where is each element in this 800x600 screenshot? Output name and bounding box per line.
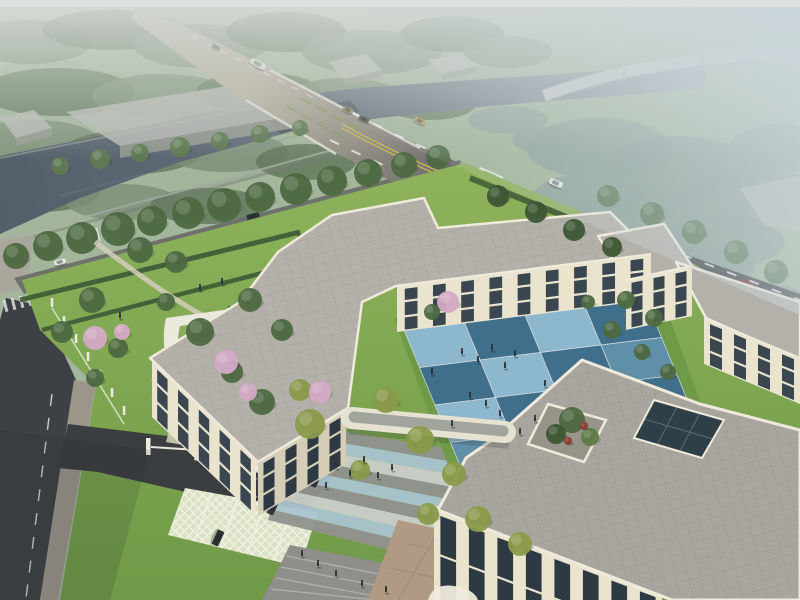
tree <box>280 173 312 205</box>
person <box>361 582 363 587</box>
person-head <box>385 586 387 588</box>
tree-highlight <box>426 306 433 313</box>
person <box>119 314 121 319</box>
person <box>534 417 536 422</box>
tree <box>207 188 241 222</box>
tree-highlight <box>565 438 569 442</box>
tree-highlight <box>562 410 574 422</box>
tree-highlight <box>468 509 480 521</box>
person-shadow <box>199 291 203 293</box>
person-head <box>301 550 303 552</box>
tree <box>172 197 204 229</box>
tree <box>108 338 128 358</box>
tree-highlight <box>549 426 558 435</box>
person <box>301 552 303 557</box>
person-shadow <box>451 427 455 429</box>
tree <box>424 304 440 320</box>
tree-highlight <box>420 505 430 515</box>
tree <box>186 318 214 346</box>
tree <box>289 379 311 401</box>
tree <box>157 293 175 311</box>
person-shadow <box>385 593 389 595</box>
tree-highlight <box>321 169 335 183</box>
person <box>469 394 471 399</box>
tree-highlight <box>168 253 178 263</box>
tree <box>86 369 104 387</box>
facade-window <box>330 418 341 473</box>
person-shadow <box>119 319 123 321</box>
facade-window <box>676 271 687 318</box>
person <box>499 412 501 417</box>
tree <box>660 364 676 380</box>
person-head <box>221 278 223 280</box>
tree-highlight <box>605 323 613 331</box>
person <box>431 370 433 375</box>
tree-highlight <box>116 326 123 333</box>
person-shadow <box>317 567 321 569</box>
person <box>544 382 546 387</box>
tree <box>239 383 257 401</box>
tree-highlight <box>528 203 538 213</box>
facade-window <box>461 280 474 323</box>
tree-highlight <box>490 187 500 197</box>
person-head <box>349 470 351 472</box>
tree-highlight <box>292 381 302 391</box>
top-edge-glow <box>0 0 800 7</box>
tree-highlight <box>647 311 655 319</box>
person-shadow <box>335 469 339 471</box>
tree <box>83 326 107 350</box>
tree <box>33 231 63 261</box>
tree <box>165 251 187 273</box>
tree-highlight <box>111 340 120 349</box>
person-head <box>361 580 363 582</box>
person <box>349 472 351 477</box>
tree-highlight <box>217 352 228 363</box>
person <box>221 280 223 285</box>
tree <box>564 437 572 445</box>
person-head <box>317 560 319 562</box>
facade-window <box>734 334 746 380</box>
tree <box>114 324 130 340</box>
person-shadow <box>431 375 435 377</box>
tree <box>350 460 370 480</box>
tree-highlight <box>511 534 522 545</box>
facade-window <box>178 390 188 451</box>
person-shadow <box>477 363 481 365</box>
fence-post <box>111 388 114 397</box>
person-head <box>199 284 201 286</box>
person-shadow <box>491 351 495 353</box>
tree <box>581 428 599 446</box>
person-head <box>335 570 337 572</box>
tree-highlight <box>86 328 97 339</box>
person-shadow <box>485 407 489 409</box>
tree <box>373 387 399 413</box>
rendering-svg <box>0 0 800 600</box>
person <box>461 350 463 355</box>
facade-window <box>469 527 485 600</box>
person <box>385 588 387 593</box>
person-shadow <box>514 357 518 359</box>
person <box>325 484 327 489</box>
facade-window <box>782 354 794 400</box>
person-head <box>485 400 487 402</box>
person-shadow <box>377 479 381 481</box>
tree-highlight <box>312 383 322 393</box>
person <box>199 286 201 291</box>
tree-highlight <box>410 429 423 442</box>
tree <box>245 182 275 212</box>
person-shadow <box>361 587 365 589</box>
person-shadow <box>221 285 225 287</box>
person-head <box>504 362 506 364</box>
architectural-rendering <box>0 0 800 600</box>
tree-highlight <box>440 293 450 303</box>
tree <box>214 350 238 374</box>
person-shadow <box>469 399 473 401</box>
tree-highlight <box>583 430 591 438</box>
tree-highlight <box>581 423 585 427</box>
person <box>485 402 487 407</box>
facade-window <box>758 344 770 390</box>
tree <box>417 503 439 525</box>
tree-highlight <box>353 462 362 471</box>
facade-window <box>546 269 559 312</box>
tree <box>406 426 434 454</box>
person-shadow <box>391 471 395 473</box>
tree <box>137 206 167 236</box>
person-head <box>119 312 121 314</box>
person-shadow <box>301 557 305 559</box>
tree <box>563 219 585 241</box>
person-head <box>499 410 501 412</box>
tree-highlight <box>53 159 61 167</box>
tree <box>238 288 262 312</box>
tree-highlight <box>159 295 167 303</box>
person-shadow <box>504 369 508 371</box>
facade-window <box>264 457 275 512</box>
tree <box>487 185 509 207</box>
facade-window <box>710 324 722 370</box>
person <box>391 466 393 471</box>
tree-highlight <box>566 221 576 231</box>
tree-highlight <box>274 321 284 331</box>
tree-highlight <box>54 323 64 333</box>
tree-highlight <box>70 225 84 239</box>
fence-post <box>75 334 78 343</box>
tree-highlight <box>130 240 142 252</box>
tree-highlight <box>662 366 669 373</box>
person <box>363 458 365 463</box>
facade-window <box>157 370 167 431</box>
person-head <box>514 350 516 352</box>
person-shadow <box>519 435 523 437</box>
person-shadow <box>534 422 538 424</box>
tree <box>603 321 621 339</box>
facade-window <box>554 559 570 600</box>
tree-highlight <box>299 412 313 426</box>
tree-highlight <box>376 390 388 402</box>
tree-highlight <box>284 176 298 190</box>
person <box>451 422 453 427</box>
tree <box>508 532 532 556</box>
facade-window <box>286 444 297 499</box>
facade-window <box>518 273 531 316</box>
person-shadow <box>325 489 329 491</box>
tree-highlight <box>190 321 203 334</box>
tree <box>442 462 466 486</box>
person <box>491 346 493 351</box>
tree-highlight <box>358 162 371 175</box>
person <box>504 364 506 369</box>
facade-window <box>220 430 230 491</box>
tree-highlight <box>636 346 643 353</box>
tree <box>66 222 98 254</box>
person-shadow <box>363 463 367 465</box>
person-shadow <box>499 417 503 419</box>
tree-highlight <box>6 246 18 258</box>
facade-window <box>602 262 615 305</box>
facade-window <box>199 410 209 471</box>
fence-post <box>123 406 126 415</box>
tree <box>546 424 566 444</box>
tree <box>602 237 622 257</box>
tree-highlight <box>605 239 614 248</box>
tree-highlight <box>619 293 627 301</box>
person <box>377 474 379 479</box>
tree-highlight <box>141 209 155 223</box>
tree-highlight <box>241 385 249 393</box>
person-head <box>461 348 463 350</box>
person-head <box>431 368 433 370</box>
tree <box>634 344 650 360</box>
tree <box>437 291 459 313</box>
person-shadow <box>461 355 465 357</box>
tree <box>51 321 73 343</box>
person-head <box>519 428 521 430</box>
fence-post <box>87 352 90 361</box>
person <box>335 572 337 577</box>
tree <box>309 381 331 403</box>
person-head <box>377 472 379 474</box>
facade-window <box>240 450 250 511</box>
tree-highlight <box>445 464 456 475</box>
facade-window <box>489 276 502 319</box>
tree <box>317 166 347 196</box>
tree <box>79 287 105 313</box>
person-head <box>469 392 471 394</box>
fence-post <box>51 298 54 307</box>
person <box>335 464 337 469</box>
tree-highlight <box>241 290 252 301</box>
tree <box>580 422 588 430</box>
person-shadow <box>544 387 548 389</box>
person <box>477 358 479 363</box>
tree <box>581 295 595 309</box>
person-head <box>491 344 493 346</box>
person-head <box>335 462 337 464</box>
tree <box>465 506 491 532</box>
tree <box>295 409 325 439</box>
tree-highlight <box>249 185 263 199</box>
tree <box>3 243 29 269</box>
tree <box>101 212 135 246</box>
tree-highlight <box>583 296 589 302</box>
tree-highlight <box>37 234 51 248</box>
person-head <box>391 464 393 466</box>
person-head <box>477 356 479 358</box>
tree <box>617 291 635 309</box>
person-head <box>544 380 546 382</box>
tree-highlight <box>176 200 190 214</box>
person-head <box>534 415 536 417</box>
tree-highlight <box>82 290 94 302</box>
person-head <box>451 420 453 422</box>
tree <box>354 159 382 187</box>
person <box>514 352 516 357</box>
tree <box>271 319 293 341</box>
person-head <box>325 482 327 484</box>
tree-highlight <box>88 371 96 379</box>
person-shadow <box>349 477 353 479</box>
person <box>519 430 521 435</box>
tree-highlight <box>211 191 226 206</box>
tree <box>127 237 153 263</box>
facade-window <box>405 287 418 330</box>
person <box>317 562 319 567</box>
tree <box>645 309 663 327</box>
person-shadow <box>335 577 339 579</box>
person-head <box>363 456 365 458</box>
tree-highlight <box>105 215 120 230</box>
